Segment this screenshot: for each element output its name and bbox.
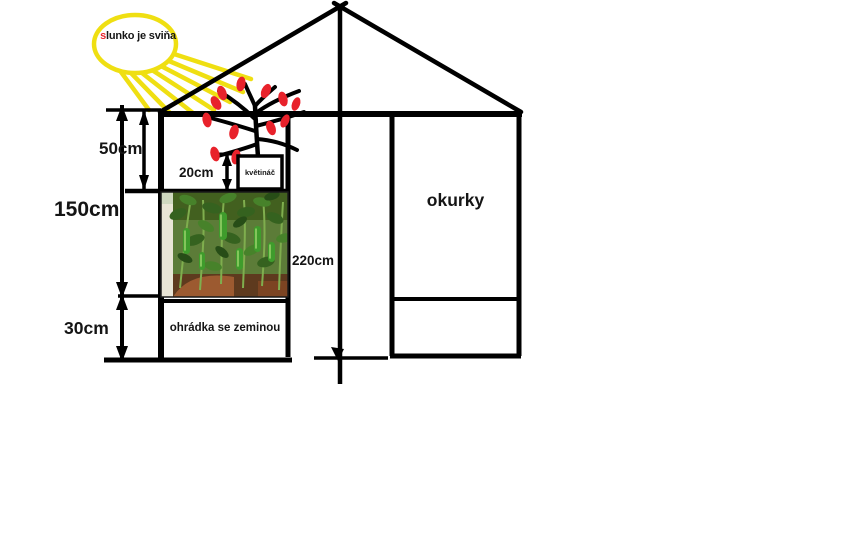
dimension-label-bottom-section: 30cm — [64, 318, 109, 339]
dimension-label-top-section: 50cm — [99, 139, 142, 159]
right-bed-label: okurky — [392, 181, 519, 219]
dimension-label-pot-height: 20cm — [179, 165, 214, 180]
diagram-line-art — [0, 0, 860, 540]
soil-box-label: ohrádka se zeminou — [162, 301, 288, 355]
right-bed-box — [390, 112, 521, 356]
pot-box-label: květináč — [238, 156, 282, 189]
sun-label: slunko je sviňa — [92, 30, 184, 42]
pepper-plants-photo — [161, 190, 293, 297]
greenhouse-sketch-diagram: slunko je sviňa 50cm 20cm 150cm 30cm 220… — [0, 0, 860, 540]
dimension-label-total-height: 220cm — [292, 253, 334, 268]
sun-label-rest: lunko je sviňa — [106, 30, 176, 42]
dimension-label-middle-section: 150cm — [54, 198, 119, 222]
